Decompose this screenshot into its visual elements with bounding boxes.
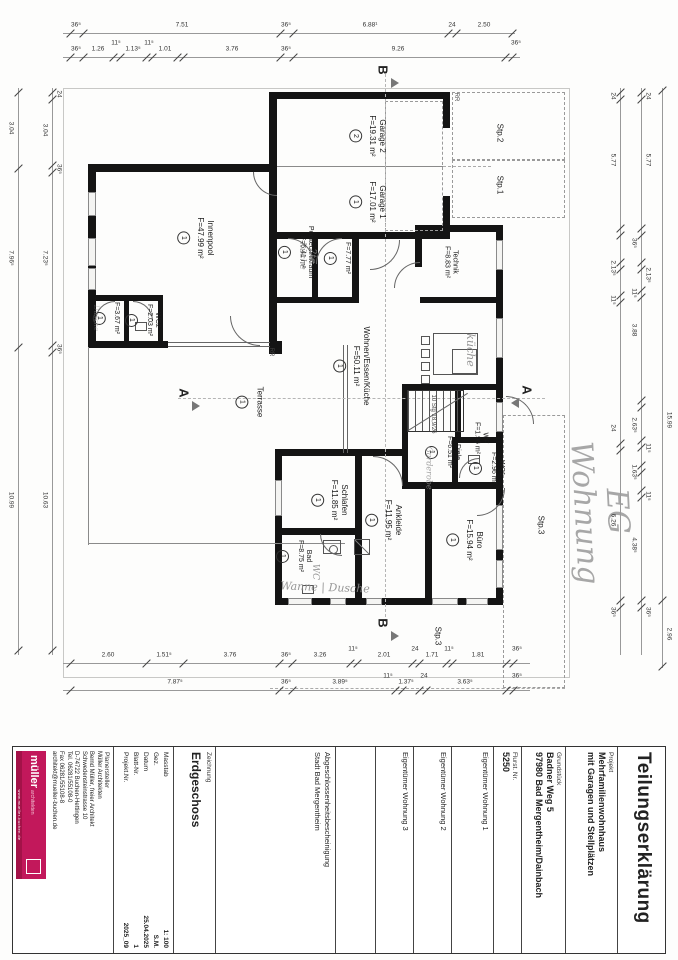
dimension-label: 10.63: [42, 492, 49, 508]
logo-website: www.mueller-buchen.de: [16, 751, 22, 879]
dimension-label: 2.01: [378, 652, 391, 659]
shower: [354, 539, 370, 555]
dimension-label: 36⁵: [511, 40, 521, 47]
dimension-label: 11⁵: [645, 443, 652, 452]
window: [432, 598, 458, 605]
dimension-label: 3.04: [8, 122, 15, 135]
meta-value: S.M.: [150, 935, 160, 948]
window: [496, 240, 503, 270]
property-dashed-line: [270, 688, 565, 689]
site-label: Grundstück: [555, 752, 562, 948]
owner-3-label: Eigentümer Wohnung 3: [401, 752, 410, 948]
handwritten-note: WC: [309, 564, 319, 580]
dimension-line: [18, 88, 19, 655]
owner-1-label: Eigentümer Wohnung 1: [481, 752, 490, 948]
dimension-label: 5.77: [610, 154, 617, 167]
meta-label: Masstab: [160, 752, 170, 777]
window: [496, 402, 503, 432]
dimension-label: 1.01: [159, 46, 172, 53]
meta-label: Datum: [140, 752, 150, 771]
window: [496, 505, 503, 550]
dimension-label: 36⁵: [56, 344, 63, 354]
dashed-area: [452, 92, 565, 160]
window: [466, 598, 488, 605]
room-label: BüroF=15.94 m²1: [446, 519, 484, 560]
room-name: WC1: [497, 452, 505, 484]
window: [88, 238, 96, 266]
window: [88, 192, 96, 216]
handwritten-note: küche: [464, 333, 476, 367]
room-label: BadF=8.75 m²1: [276, 540, 312, 572]
room-name: Büro: [475, 519, 485, 560]
room-label: Garage 2F=19.31 m²2: [349, 115, 387, 156]
dimension-label: 1.71: [426, 652, 439, 659]
room-area: F=2.96 m²: [488, 452, 496, 484]
annotation-label: RR: [268, 348, 274, 357]
section-marker: B: [376, 65, 391, 74]
window: [275, 480, 282, 516]
handwritten-note: 2te küche: [296, 242, 316, 269]
room-name: Schlafen: [340, 480, 350, 521]
address-line: Bernd Müller, freier Architekt: [87, 751, 95, 829]
room-label: InnenpoolF=47.99 m²1: [177, 217, 215, 258]
dimension-label: 1.13⁵: [125, 46, 140, 53]
dimension-line: [662, 88, 663, 668]
project-line-2: mit Garagen und Stellplätzen: [585, 752, 596, 948]
dimension-label: 2.96: [666, 628, 673, 641]
room-area: F=19.31 m²: [368, 115, 378, 156]
dimension-line: [63, 690, 530, 691]
dimension-label: 36⁵: [56, 164, 63, 174]
dimension-label: 7.87⁵: [167, 679, 182, 686]
section-marker: B: [376, 618, 391, 627]
dimension-line: [641, 88, 642, 655]
site-cell: Grundstück Badner Weg 5 97980 Bad Mergen…: [521, 747, 565, 953]
room-label: WFF=1.96 m²: [472, 422, 489, 454]
window: [496, 560, 503, 588]
room-label: Garage 1F=17.01 m²1: [349, 181, 387, 222]
drawing-cell: Zeichnung Erdgeschoss: [173, 747, 215, 953]
dimension-label: 11⁵: [348, 646, 357, 653]
unit-number-circle: 1: [365, 513, 378, 526]
meta-row: Blatt-Nr.1: [130, 752, 140, 948]
room-label: AnkleideF=11.95 m²1: [365, 500, 403, 541]
room-area: F=47.99 m²: [196, 217, 206, 258]
kitchen-chair: [421, 375, 430, 384]
room-name: WF: [480, 422, 488, 454]
parcel-label: Flurst. Nr.: [511, 752, 518, 948]
document-title: Teilungserklärung: [632, 752, 662, 948]
meta-value: 2025_09: [120, 923, 130, 948]
owner-3-cell: Eigentümer Wohnung 3: [375, 747, 413, 953]
room-label: Terrasse1: [236, 387, 265, 418]
room-label: WC1F=2.96 m²1: [469, 452, 505, 484]
dimension-label: 24: [448, 22, 455, 29]
dimension-label: 3.76: [224, 652, 237, 659]
room-area: F=15.94 m²: [465, 519, 475, 560]
owner-2-cell: Eigentümer Wohnung 2: [413, 747, 451, 953]
handwritten-note: Garderobe: [424, 446, 433, 489]
dimension-label: 15.99: [666, 412, 673, 428]
room-name: WC2: [153, 304, 161, 336]
owner-1-cell: Eigentümer Wohnung 1: [451, 747, 493, 953]
room-area: F=11.95 m²: [384, 500, 394, 541]
dimension-label: 10.99: [8, 492, 15, 508]
unit-number-circle: 1: [177, 231, 190, 244]
dimension-label: 36⁵: [512, 646, 522, 653]
room-name: Innenpool: [206, 217, 216, 258]
room-name: Ankleide: [394, 500, 404, 541]
dimension-label: 24: [610, 92, 617, 99]
room-area: F=50.11 m²: [352, 326, 362, 405]
planner-label: Planersteller: [103, 752, 110, 948]
room-name: Wohnen/Essen/Küche: [362, 326, 372, 405]
unit-number-circle: 1: [446, 533, 459, 546]
room-label: TechnikF=8.83 m²: [442, 246, 459, 278]
parking-label: Stp.2: [496, 124, 505, 143]
meta-value: 1: 100: [160, 930, 170, 948]
annotation-label: RR: [453, 93, 459, 102]
section-arrow-icon: [192, 401, 200, 411]
dimension-label: 1.26: [92, 46, 105, 53]
unit-number-circle: 1: [469, 461, 482, 474]
dimension-label: 1.51⁵: [156, 652, 171, 659]
dimension-label: 2.13⁵: [610, 260, 617, 275]
dimension-label: 11⁵: [444, 646, 453, 653]
logo-square-icon: [26, 859, 41, 874]
address-line: Müller Architekten: [95, 751, 103, 829]
section-arrow-icon: [391, 631, 399, 641]
address-line: architekt@mueller-buchen.de: [50, 751, 58, 829]
unit-number-circle: 1: [349, 195, 362, 208]
dimension-label: 11⁵: [144, 40, 153, 47]
certificate-line-2: Stadt Bad Mergentheim: [313, 752, 323, 948]
room-label: F=7.77 m²1: [323, 242, 351, 274]
dimension-label: 1.81: [472, 652, 485, 659]
dimension-label: 4.38⁵: [631, 537, 638, 552]
dimension-label: 11⁵: [631, 288, 638, 297]
meta-row: Gez.S.M.: [150, 752, 160, 948]
title-block: Teilungserklärung Projekt Mehrfamilienwo…: [12, 746, 666, 954]
dimension-label: 7.51: [176, 22, 189, 29]
drawing-label: Zeichnung: [205, 752, 212, 948]
section-arrow-icon: [391, 78, 399, 88]
meta-value: 1: [130, 944, 140, 948]
handwritten-note: Dusche: [91, 305, 99, 331]
unit-number-circle: 2: [349, 129, 362, 142]
logo-brand: müller: [29, 755, 40, 788]
dimension-label: 3.76: [226, 46, 239, 53]
parcel-number: 5250: [500, 752, 511, 948]
dimension-label: 36⁵: [71, 46, 81, 53]
dimension-label: 3.63⁵: [457, 679, 472, 686]
room-area: F=8.83 m²: [442, 246, 450, 278]
dashed-area: [385, 101, 443, 231]
dimension-label: 3.26: [314, 652, 327, 659]
room-label: SchlafenF=11.85 m²1: [311, 480, 349, 521]
site-line-1: Badner Weg 5: [544, 752, 555, 948]
annotation-label: 10 Stg 18,9/26: [430, 394, 436, 433]
window: [366, 598, 382, 605]
meta-cell: Masstab1: 100Gez.S.M.Datum25.04.2025Blat…: [113, 747, 173, 953]
room-area: F=7.77 m²: [342, 242, 350, 274]
dimension-label: 36⁵: [281, 679, 291, 686]
section-arrow-icon: [511, 398, 519, 408]
window: [88, 268, 96, 290]
address-line: Tel. 06281/55108-0: [65, 751, 73, 829]
dimension-label: 24: [610, 424, 617, 431]
room-name: Diele: [453, 436, 461, 468]
project-label: Projekt: [607, 752, 614, 948]
room-label: WC2F=2.03 m²1: [125, 304, 161, 336]
meta-row: Datum25.04.2025: [140, 752, 150, 948]
meta-row: Projekt.Nr.2025_09: [120, 752, 130, 948]
dimension-label: 9.26: [392, 46, 405, 53]
room-name: Garage 1: [378, 181, 388, 222]
dashed-area: [452, 160, 565, 218]
dimension-label: 24: [420, 673, 427, 680]
dimension-label: 36⁵: [631, 238, 638, 248]
section-marker: A: [177, 388, 192, 397]
dimension-label: 7.96⁵: [8, 250, 15, 265]
kitchen-chair: [421, 362, 430, 371]
logo-sub: architekten: [29, 790, 35, 814]
dimension-label: 5.77: [645, 154, 652, 167]
site-line-2: 97980 Bad Mergentheim/Dainbach: [533, 752, 544, 948]
dimension-label: 11⁵: [610, 295, 617, 304]
dimension-label: 1.63⁵: [631, 464, 638, 479]
dimension-label: 36⁵: [281, 652, 291, 659]
room-name: Terrasse: [255, 387, 265, 418]
window: [330, 598, 346, 605]
unit-number-circle: 1: [323, 251, 336, 264]
unit-number-circle: 1: [125, 313, 138, 326]
room-area: F=1.96 m²: [472, 422, 480, 454]
dimension-label: 2.60: [102, 652, 115, 659]
dimension-label: 3.88: [631, 324, 638, 337]
dimension-label: 7.23⁵: [42, 250, 49, 265]
architect-logo: müller architekten www.mueller-buchen.de: [16, 751, 46, 879]
dimension-line: [620, 88, 621, 655]
dimension-label: 11⁵: [383, 673, 392, 680]
meta-label: Blatt-Nr.: [130, 752, 140, 775]
room-label: Wohnen/Essen/KücheF=50.11 m²1: [333, 326, 371, 405]
drawing-name: Erdgeschoss: [189, 752, 203, 948]
meta-label: Projekt.Nr.: [120, 752, 130, 782]
room-area: F=3.67 m²: [111, 302, 119, 334]
dimension-label: 6.26: [610, 514, 617, 527]
owner-2-label: Eigentümer Wohnung 2: [439, 752, 448, 948]
unit-number-circle: 1: [278, 245, 291, 258]
dimension-label: 36⁵: [281, 22, 291, 29]
empty-cell: [335, 747, 375, 953]
meta-value: 25.04.2025: [140, 915, 150, 948]
address-line: Fax 06281/55108-8: [57, 751, 65, 829]
certificate-line-1: Abgeschlossenheitsbescheinigung: [322, 752, 332, 948]
dimension-label: 6.88¹: [363, 22, 378, 29]
dimension-label: 36⁵: [512, 673, 522, 680]
floor-plan: Garage 2F=19.31 m²2Garage 1F=17.01 m²1In…: [0, 0, 678, 746]
dimension-label: 3.89⁵: [332, 679, 347, 686]
dimension-label: 24: [56, 90, 63, 97]
terrace-edge: [88, 347, 89, 545]
architect-address: Müller ArchitektenBernd Müller, freier A…: [50, 751, 103, 829]
room-name: Technik: [450, 246, 458, 278]
unit-number-circle: 1: [276, 549, 289, 562]
dimension-label: 11⁵: [111, 40, 120, 47]
dimension-label: 2.63⁵: [631, 417, 638, 432]
unit-number-circle: 1: [333, 359, 346, 372]
room-area: F=11.85 m²: [330, 480, 340, 521]
dimension-label: 24: [411, 646, 418, 653]
room-area: F=17.01 m²: [368, 181, 378, 222]
project-cell: Projekt Mehrfamilienwohnhaus mit Garagen…: [565, 747, 617, 953]
dimension-label: 2.50: [478, 22, 491, 29]
room-name: Garage 2: [378, 115, 388, 156]
parking-label: Stp.1: [496, 176, 505, 195]
window: [288, 598, 312, 605]
dimension-label: 36⁵: [281, 46, 291, 53]
dimension-label: 3.04: [42, 124, 49, 137]
parking-label: Stp.3: [434, 627, 443, 646]
window: [496, 318, 503, 358]
parcel-cell: Flurst. Nr. 5250: [493, 747, 521, 953]
room-area: F=8.75 m²: [295, 540, 303, 572]
dimension-label: 36⁵: [71, 22, 81, 29]
title-block-title-cell: Teilungserklärung: [617, 747, 665, 953]
kitchen-chair: [421, 349, 430, 358]
address-line: D-74722 Buchen-Hettingen: [72, 751, 80, 829]
address-line: Schwedensteinstrasse 10: [80, 751, 88, 829]
dimension-label: 1.37⁵: [398, 679, 413, 686]
drawing-sheet: Garage 2F=19.31 m²2Garage 1F=17.01 m²1In…: [0, 0, 678, 960]
kitchen-chair: [421, 336, 430, 345]
dimension-label: 2.13⁵: [645, 267, 652, 282]
certificate-cell: Abgeschlossenheitsbescheinigung Stadt Ba…: [215, 747, 335, 953]
dimension-label: 36⁵: [645, 607, 652, 617]
handwritten-note: EG Wohnung: [564, 439, 637, 586]
project-line-1: Mehrfamilienwohnhaus: [596, 752, 607, 948]
room-area: F=6.51 m²: [444, 436, 452, 468]
unit-number-circle: 1: [236, 396, 249, 409]
planner-cell: Planersteller Müller ArchitektenBernd Mü…: [13, 747, 113, 953]
room-area: F=2.03 m²: [144, 304, 152, 336]
meta-label: Gez.: [150, 752, 160, 766]
dimension-label: 24: [645, 92, 652, 99]
dimension-label: 36⁵: [610, 607, 617, 617]
logo-main: müller architekten: [22, 751, 46, 879]
section-marker: A: [520, 385, 535, 394]
dimension-line: [63, 663, 530, 664]
parking-label: Stp.3: [537, 516, 546, 535]
dimension-label: 11⁵: [645, 491, 652, 500]
unit-number-circle: 1: [311, 493, 324, 506]
meta-row: Masstab1: 100: [160, 752, 170, 948]
